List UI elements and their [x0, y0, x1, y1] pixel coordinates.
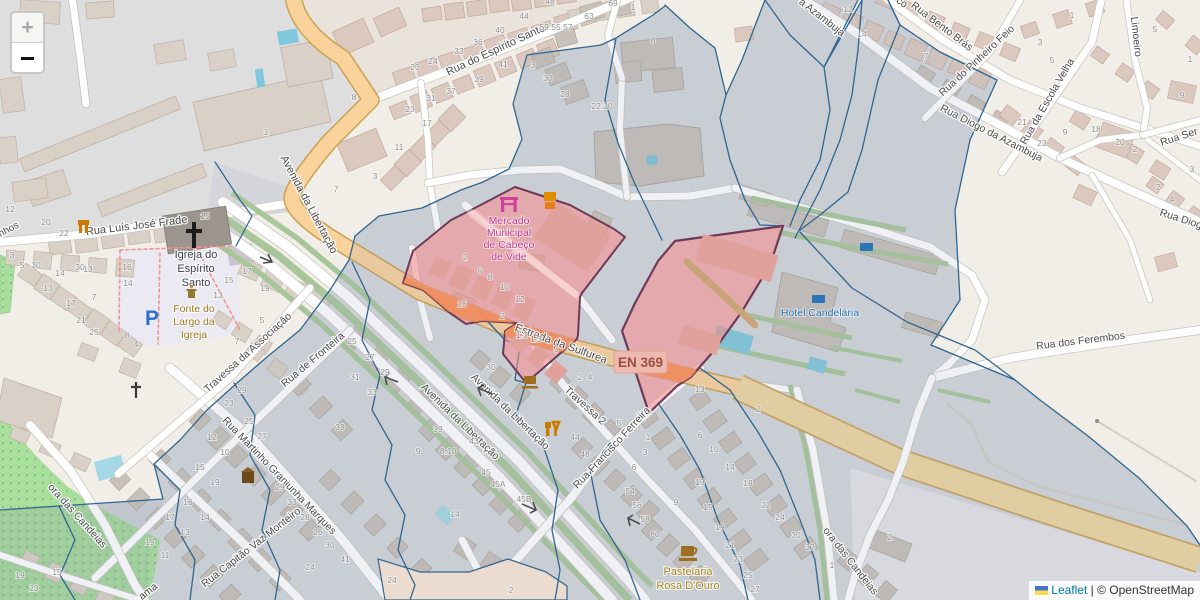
svg-text:5: 5 — [617, 418, 622, 428]
svg-text:45A: 45A — [490, 479, 505, 489]
svg-text:3: 3 — [373, 171, 378, 181]
svg-text:5: 5 — [20, 260, 25, 270]
svg-text:44: 44 — [519, 11, 529, 21]
svg-text:24: 24 — [305, 562, 315, 572]
svg-text:39: 39 — [433, 424, 443, 434]
svg-text:3: 3 — [1190, 164, 1195, 174]
svg-text:17: 17 — [422, 118, 432, 128]
svg-text:P: P — [145, 307, 159, 330]
svg-text:56: 56 — [632, 500, 642, 510]
svg-text:2: 2 — [500, 311, 505, 321]
svg-text:1: 1 — [1188, 54, 1193, 64]
svg-text:30: 30 — [486, 362, 496, 372]
svg-text:58: 58 — [640, 514, 650, 524]
svg-text:19: 19 — [210, 477, 220, 487]
svg-text:22: 22 — [761, 500, 771, 510]
svg-text:1: 1 — [631, 2, 636, 12]
svg-text:28: 28 — [560, 89, 570, 99]
svg-text:4: 4 — [588, 372, 593, 382]
svg-text:2: 2 — [888, 532, 893, 542]
svg-text:27: 27 — [257, 431, 267, 441]
svg-text:23: 23 — [733, 554, 743, 564]
svg-text:8.10: 8.10 — [440, 446, 457, 456]
svg-text:3: 3 — [1038, 37, 1043, 47]
svg-text:Pastelaria: Pastelaria — [664, 566, 714, 578]
svg-text:30: 30 — [543, 73, 553, 83]
svg-text:16: 16 — [122, 262, 132, 272]
svg-text:10: 10 — [709, 444, 719, 454]
svg-text:2: 2 — [756, 404, 761, 414]
svg-text:4: 4 — [134, 339, 139, 349]
svg-text:6: 6 — [698, 430, 703, 440]
svg-text:25: 25 — [743, 570, 753, 580]
svg-text:5: 5 — [1153, 24, 1158, 34]
svg-text:26: 26 — [313, 527, 323, 537]
svg-text:25: 25 — [89, 327, 99, 337]
svg-text:17: 17 — [66, 298, 76, 308]
svg-text:13: 13 — [43, 283, 53, 293]
svg-text:19: 19 — [145, 537, 155, 547]
svg-text:22: 22 — [59, 228, 69, 238]
svg-text:12: 12 — [843, 4, 853, 14]
svg-text:8: 8 — [125, 330, 130, 340]
svg-text:54: 54 — [625, 486, 635, 496]
svg-text:7: 7 — [334, 184, 339, 194]
svg-text:44: 44 — [570, 432, 580, 442]
svg-text:Rosa D'Ouro: Rosa D'Ouro — [656, 580, 719, 592]
svg-text:2: 2 — [1156, 182, 1161, 192]
svg-text:31: 31 — [426, 93, 436, 103]
svg-text:17: 17 — [165, 512, 175, 522]
svg-text:29: 29 — [237, 385, 247, 395]
svg-text:11: 11 — [395, 142, 404, 152]
svg-text:29: 29 — [380, 367, 390, 377]
svg-text:48: 48 — [580, 449, 590, 459]
svg-text:10: 10 — [220, 447, 230, 457]
svg-text:7: 7 — [924, 51, 929, 61]
svg-text:14: 14 — [55, 268, 65, 278]
svg-text:13: 13 — [180, 527, 190, 537]
svg-text:6: 6 — [632, 462, 637, 472]
svg-text:48: 48 — [545, 0, 555, 6]
svg-text:24: 24 — [428, 56, 438, 66]
svg-text:2: 2 — [1133, 144, 1138, 154]
svg-text:30: 30 — [31, 260, 41, 270]
svg-text:1.3: 1.3 — [516, 330, 528, 340]
svg-text:32: 32 — [454, 46, 464, 56]
svg-text:3: 3 — [531, 60, 536, 70]
svg-text:20: 20 — [41, 217, 51, 227]
svg-text:4: 4 — [1170, 194, 1175, 204]
svg-text:12: 12 — [5, 204, 15, 214]
svg-text:3: 3 — [643, 447, 648, 457]
svg-text:39: 39 — [474, 74, 484, 84]
svg-text:1.3: 1.3 — [530, 334, 542, 344]
svg-text:Mercado: Mercado — [489, 215, 530, 227]
svg-text:13: 13 — [695, 384, 705, 394]
svg-text:Igreja do: Igreja do — [175, 249, 218, 261]
svg-text:27: 27 — [750, 584, 760, 594]
svg-text:63: 63 — [584, 11, 594, 21]
svg-text:Hotel Candelária: Hotel Candelária — [781, 307, 859, 319]
svg-text:21: 21 — [725, 540, 735, 550]
svg-text:3: 3 — [10, 250, 15, 260]
svg-text:15: 15 — [195, 462, 205, 472]
svg-text:43: 43 — [469, 436, 479, 446]
svg-text:14: 14 — [123, 278, 133, 288]
svg-text:20: 20 — [1115, 137, 1125, 147]
svg-text:5: 5 — [1050, 55, 1055, 65]
svg-text:24: 24 — [775, 512, 785, 522]
svg-text:32: 32 — [805, 542, 815, 552]
svg-text:33: 33 — [287, 497, 297, 507]
svg-text:13: 13 — [695, 477, 705, 487]
svg-text:1: 1 — [264, 127, 269, 137]
svg-text:41: 41 — [498, 59, 508, 69]
svg-text:7: 7 — [92, 292, 97, 302]
svg-text:36: 36 — [473, 37, 483, 47]
svg-text:9: 9 — [1180, 90, 1185, 100]
svg-text:5: 5 — [260, 315, 265, 325]
svg-text:25: 25 — [347, 336, 357, 346]
svg-text:30: 30 — [791, 530, 801, 540]
svg-text:16: 16 — [183, 497, 193, 507]
svg-text:5: 5 — [554, 344, 559, 354]
svg-text:39: 39 — [335, 422, 345, 432]
svg-text:21: 21 — [1017, 117, 1027, 127]
svg-text:9: 9 — [416, 446, 421, 456]
svg-text:30: 30 — [325, 540, 335, 550]
svg-text:23: 23 — [1037, 138, 1047, 148]
svg-text:11: 11 — [161, 550, 170, 560]
svg-text:15: 15 — [703, 502, 713, 512]
svg-text:21: 21 — [76, 315, 86, 325]
svg-text:Espírito: Espírito — [177, 263, 214, 275]
svg-text:19: 19 — [15, 570, 25, 580]
svg-text:30: 30 — [75, 262, 85, 272]
svg-text:2: 2 — [578, 372, 583, 382]
svg-text:6: 6 — [478, 266, 483, 276]
svg-text:45B: 45B — [516, 494, 531, 504]
svg-text:18: 18 — [743, 478, 753, 488]
svg-text:14: 14 — [200, 512, 210, 522]
svg-text:25: 25 — [244, 416, 254, 426]
svg-text:14: 14 — [857, 29, 867, 39]
svg-text:69: 69 — [608, 0, 618, 8]
svg-text:37: 37 — [446, 86, 456, 96]
svg-text:1: 1 — [646, 432, 651, 442]
svg-text:Igreja: Igreja — [181, 329, 207, 341]
svg-text:23: 23 — [405, 104, 415, 114]
svg-text:26: 26 — [457, 299, 467, 309]
svg-text:23: 23 — [224, 398, 234, 408]
svg-text:2: 2 — [509, 585, 514, 595]
svg-text:Largo da: Largo da — [173, 316, 215, 328]
svg-text:1: 1 — [1070, 10, 1075, 20]
svg-text:28: 28 — [300, 512, 310, 522]
svg-text:31: 31 — [350, 372, 360, 382]
svg-text:41: 41 — [340, 554, 350, 564]
svg-text:20: 20 — [410, 62, 420, 72]
svg-text:1: 1 — [830, 560, 835, 570]
svg-text:17: 17 — [242, 266, 252, 276]
svg-text:8: 8 — [488, 272, 493, 282]
svg-text:2: 2 — [463, 252, 468, 262]
svg-text:22:20: 22:20 — [591, 101, 613, 111]
svg-text:15: 15 — [200, 211, 210, 221]
svg-text:10: 10 — [500, 282, 510, 292]
svg-text:12: 12 — [515, 294, 525, 304]
svg-text:45: 45 — [481, 467, 491, 477]
svg-text:33: 33 — [367, 387, 377, 397]
svg-text:15: 15 — [224, 275, 234, 285]
svg-text:EN 369: EN 369 — [618, 355, 663, 370]
svg-text:de Cabeço: de Cabeço — [484, 239, 535, 251]
svg-text:59:55:57: 59:55:57 — [539, 22, 572, 32]
svg-text:19: 19 — [260, 283, 270, 293]
svg-text:Santo: Santo — [182, 277, 211, 289]
svg-text:18: 18 — [1091, 124, 1101, 134]
svg-text:24: 24 — [387, 575, 397, 585]
svg-text:60: 60 — [650, 529, 660, 539]
svg-text:29: 29 — [275, 482, 285, 492]
svg-text:9: 9 — [1063, 127, 1068, 137]
svg-text:15: 15 — [52, 567, 62, 577]
svg-text:14: 14 — [725, 462, 735, 472]
svg-text:27: 27 — [365, 352, 375, 362]
svg-text:8: 8 — [352, 92, 357, 102]
svg-text:de Vide: de Vide — [491, 251, 527, 263]
svg-text:19: 19 — [715, 522, 725, 532]
svg-text:Fonte do: Fonte do — [173, 303, 215, 315]
svg-text:7: 7 — [235, 336, 240, 346]
svg-text:8: 8 — [651, 35, 656, 45]
svg-text:9: 9 — [674, 497, 679, 507]
svg-text:40: 40 — [495, 25, 505, 35]
svg-text:12: 12 — [207, 432, 217, 442]
svg-text:13: 13 — [213, 290, 223, 300]
svg-text:Municipal: Municipal — [487, 227, 531, 239]
svg-text:14: 14 — [450, 509, 460, 519]
svg-text:23: 23 — [29, 583, 39, 593]
